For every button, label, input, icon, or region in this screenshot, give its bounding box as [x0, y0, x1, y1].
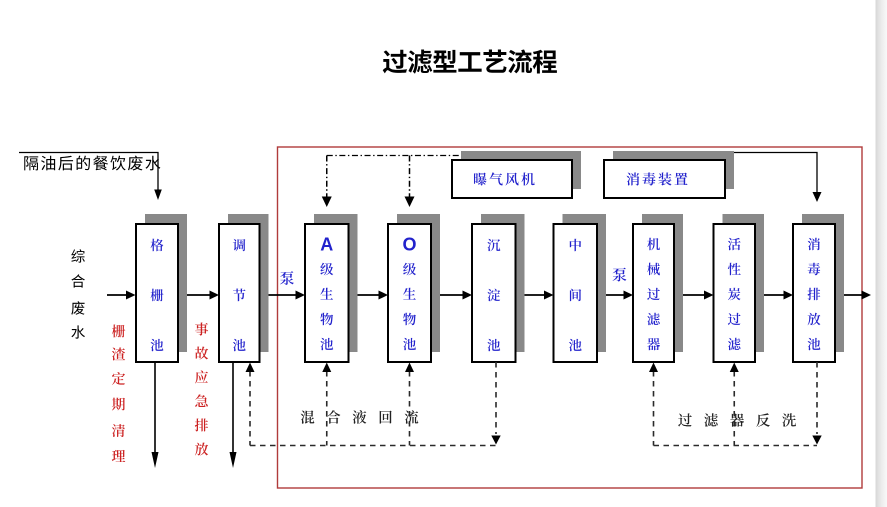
svg-text:O: O — [402, 234, 416, 254]
svg-text:A: A — [320, 234, 333, 254]
